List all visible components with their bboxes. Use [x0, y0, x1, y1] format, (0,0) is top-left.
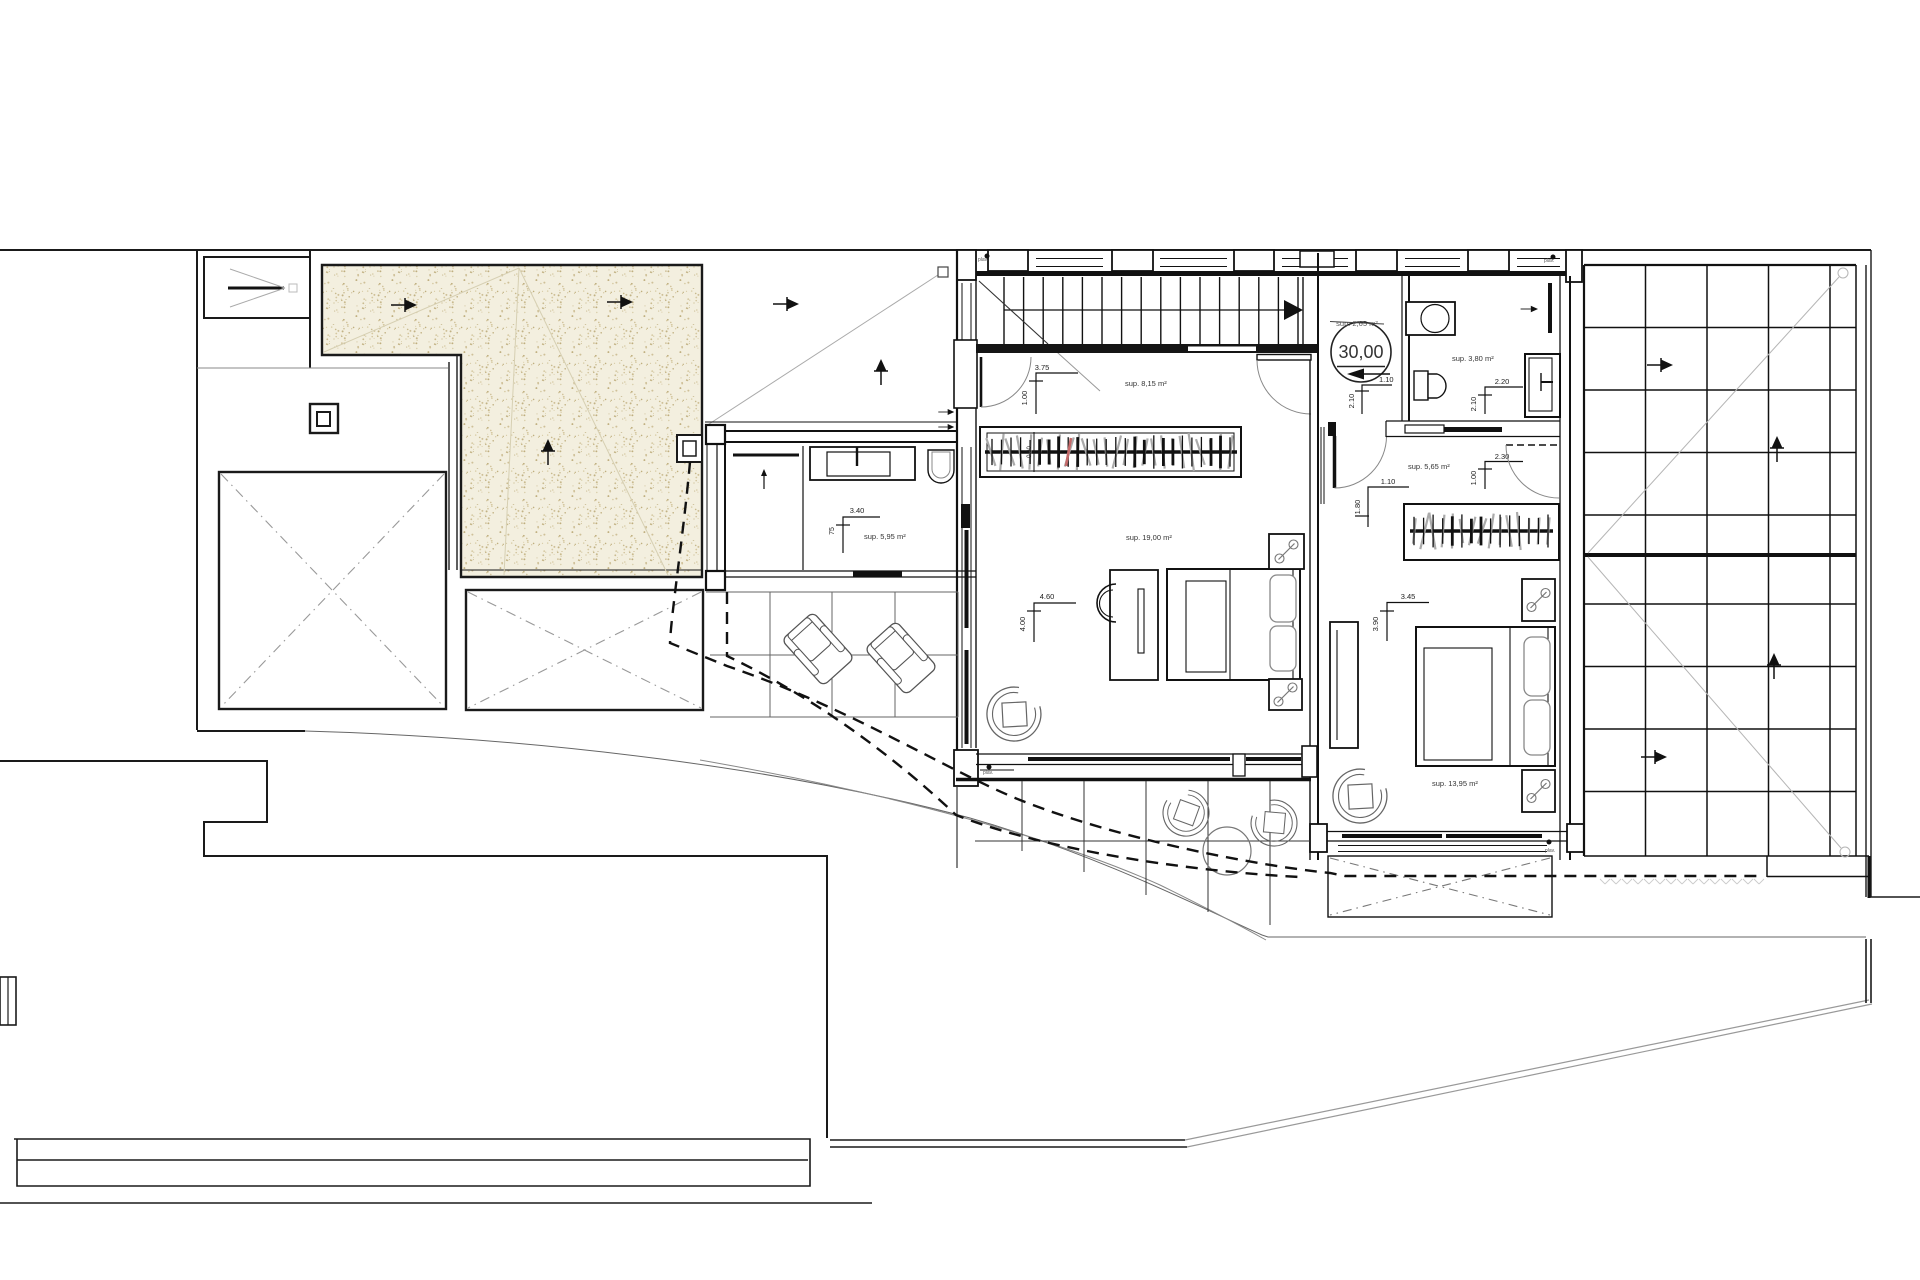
svg-text:3.45: 3.45 [1401, 592, 1416, 601]
svg-text:sup. 5,65 m²: sup. 5,65 m² [1408, 462, 1450, 471]
svg-text:4.00: 4.00 [1018, 617, 1027, 632]
svg-text:sup. 3,80 m²: sup. 3,80 m² [1452, 354, 1494, 363]
svg-text:plav.: plav. [1545, 848, 1555, 854]
svg-text:3.90: 3.90 [1371, 617, 1380, 632]
svg-text:1.10: 1.10 [1379, 375, 1394, 384]
svg-text:sup. 5,95 m²: sup. 5,95 m² [864, 532, 906, 541]
svg-text:1.80: 1.80 [1353, 500, 1362, 515]
svg-text:4.60: 4.60 [1040, 592, 1055, 601]
svg-text:sup. 13,95 m²: sup. 13,95 m² [1432, 779, 1478, 788]
svg-text:30,00: 30,00 [1338, 342, 1383, 362]
svg-text:2.20: 2.20 [1495, 377, 1510, 386]
svg-text:sup. 19,00 m²: sup. 19,00 m² [1126, 533, 1172, 542]
svg-text:0.60: 0.60 [1027, 446, 1033, 458]
svg-text:sup. 8,15 m²: sup. 8,15 m² [1125, 379, 1167, 388]
svg-text:2.10: 2.10 [1347, 394, 1356, 409]
svg-text:plav.: plav. [983, 770, 993, 776]
svg-text:1.00: 1.00 [1020, 391, 1029, 406]
svg-text:2.10: 2.10 [1469, 397, 1478, 412]
svg-text:3.75: 3.75 [1035, 363, 1050, 372]
svg-text:3.40: 3.40 [850, 506, 865, 515]
svg-text:1.00: 1.00 [1469, 471, 1478, 486]
svg-text:75: 75 [829, 527, 836, 535]
svg-text:1.10: 1.10 [1381, 477, 1396, 486]
